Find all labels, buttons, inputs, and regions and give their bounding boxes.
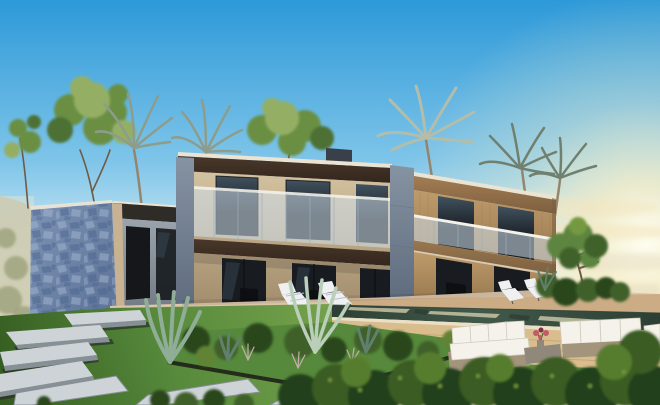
flower-bouquet-part — [538, 335, 542, 339]
flower-bouquet-part — [543, 330, 549, 336]
small-tree-foliage-part — [569, 217, 587, 235]
flower-bouquet-part — [533, 330, 539, 336]
base-bushes-part — [610, 282, 630, 302]
foreground-hedges-part — [486, 354, 514, 382]
small-tree-foliage-part-part — [559, 247, 581, 269]
shrub-balls-part — [196, 346, 216, 366]
foreground-hedges-part — [341, 357, 371, 387]
tree-foliage-part-part — [19, 131, 41, 153]
base-bushes-part — [552, 278, 580, 306]
leaf-speckles-part — [622, 370, 626, 374]
villa-render-image — [0, 0, 660, 405]
tree-foliage-part-part — [70, 76, 94, 100]
leaf-speckles-part — [398, 376, 402, 380]
foreground-hedges-part — [414, 352, 446, 384]
tree-foliage-part-part — [27, 115, 41, 129]
tree-foliage-part-part — [108, 84, 128, 104]
tree-foliage-part-part — [262, 98, 282, 118]
palm-fronds-part — [206, 151, 240, 152]
sofa-left-part — [450, 321, 530, 360]
tree-foliage-part-part — [47, 117, 73, 143]
leaf-speckles-part — [476, 374, 480, 378]
leaf-speckles-part — [358, 388, 362, 392]
corner-column — [176, 157, 194, 311]
annex-doorway — [126, 226, 150, 300]
leaf-speckles-part — [550, 374, 554, 378]
tree-foliage-part-part — [310, 126, 334, 150]
leaf-speckles-part — [514, 384, 518, 388]
leaf-speckles-part — [588, 384, 592, 388]
small-tree-foliage-part-part — [584, 234, 608, 258]
sofa-left-part-part — [506, 321, 525, 340]
palm-fronds-right-part — [560, 138, 561, 178]
sofa-left-part-part — [488, 322, 507, 342]
leaf-speckles-part — [438, 384, 442, 388]
villa-render-scene — [0, 0, 660, 405]
tree-foliage-part-part — [4, 142, 20, 158]
stone-texture — [30, 203, 117, 324]
flower-bouquet-part — [539, 328, 544, 333]
shrub-balls-part — [383, 331, 413, 361]
divider-column — [390, 165, 414, 303]
foreground-hedges-part — [596, 344, 632, 380]
coffee-table-part — [537, 340, 544, 348]
leaf-speckles-part — [328, 378, 332, 382]
